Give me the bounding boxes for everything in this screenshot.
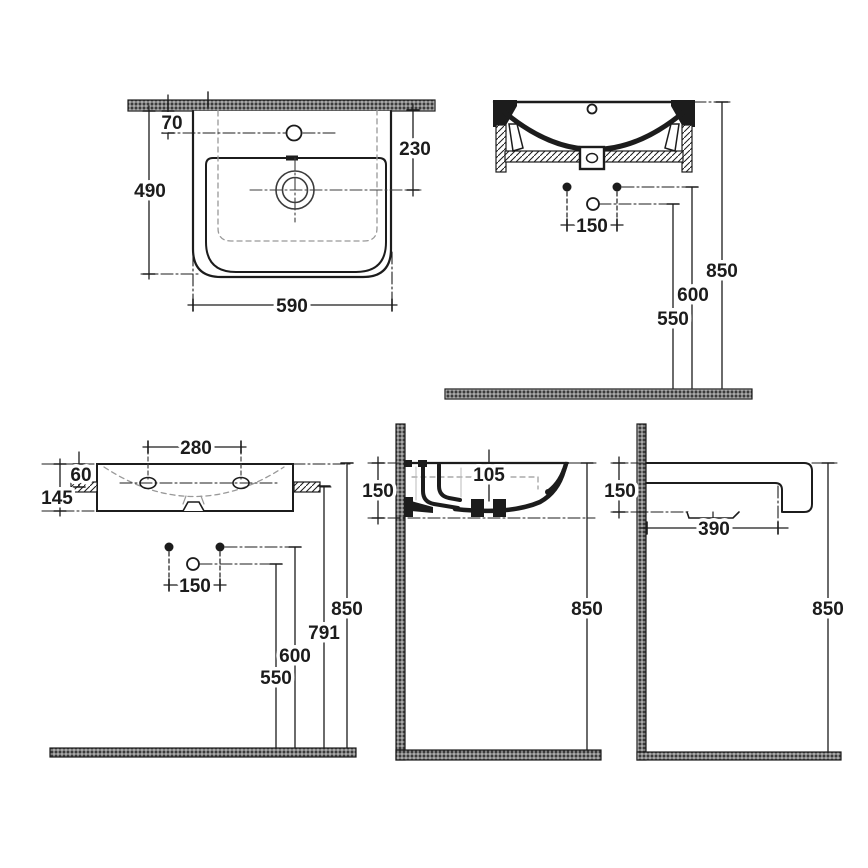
fixing-bolt-left: [165, 543, 174, 552]
dim-label-280: 280: [180, 438, 212, 459]
floor-hatch: [396, 750, 601, 760]
dim-label-150: 150: [604, 481, 636, 502]
dim-label-105: 105: [473, 465, 505, 486]
wall-hatch: [637, 424, 646, 760]
faucet-hole: [287, 126, 302, 141]
overflow-slot: [286, 156, 298, 161]
faucet-hole: [588, 105, 597, 114]
dim-label-550: 550: [260, 668, 292, 689]
wall-bearing-rear: [404, 460, 412, 467]
dim-label-590: 590: [276, 296, 308, 317]
fixing-bolt-left: [563, 183, 572, 192]
floor-hatch: [445, 389, 752, 399]
drain-block-right: [493, 499, 506, 517]
base-slab-section-left: [505, 151, 580, 162]
washbasin-technical-drawing: 70 490 230 590 150 850 600 550: [0, 0, 868, 868]
wall-bolt-right: [294, 482, 320, 492]
fixing-bolt-right: [216, 543, 225, 552]
dim-label-70: 70: [161, 113, 182, 134]
dim-label-850: 850: [331, 599, 363, 620]
drain-opening: [587, 154, 598, 163]
basin-rim-outline: [206, 158, 386, 272]
wall-hatch: [128, 100, 435, 111]
drawing-canvas: 70 490 230 590 150 850 600 550: [0, 0, 868, 868]
floor-hatch: [50, 748, 356, 757]
floor-hatch: [637, 752, 841, 760]
dim-label-150: 150: [179, 576, 211, 597]
dim-label-150: 150: [362, 481, 394, 502]
dim-label-230: 230: [399, 139, 431, 160]
wall-hatch: [396, 424, 405, 760]
waste-outlet: [187, 558, 199, 570]
dim-label-390: 390: [698, 519, 730, 540]
drain-block-left: [471, 499, 484, 517]
dim-label-850: 850: [706, 261, 738, 282]
dim-label-150: 150: [576, 216, 608, 237]
front-rim-tip: [545, 489, 551, 495]
dim-label-850: 850: [571, 599, 603, 620]
dim-label-490: 490: [134, 181, 166, 202]
base-slab-section-right: [604, 151, 683, 162]
waste-outlet: [587, 198, 599, 210]
dim-label-600: 600: [677, 285, 709, 306]
dim-label-791: 791: [308, 623, 340, 644]
background: [0, 0, 868, 868]
dim-label-60: 60: [70, 465, 91, 486]
fixing-bolt-right: [613, 183, 622, 192]
dim-label-850: 850: [812, 599, 844, 620]
dim-label-600: 600: [279, 646, 311, 667]
dim-label-550: 550: [657, 309, 689, 330]
side-wall-section-left: [496, 125, 506, 172]
dim-label-145: 145: [41, 488, 73, 509]
side-wall-section-right: [682, 125, 692, 172]
